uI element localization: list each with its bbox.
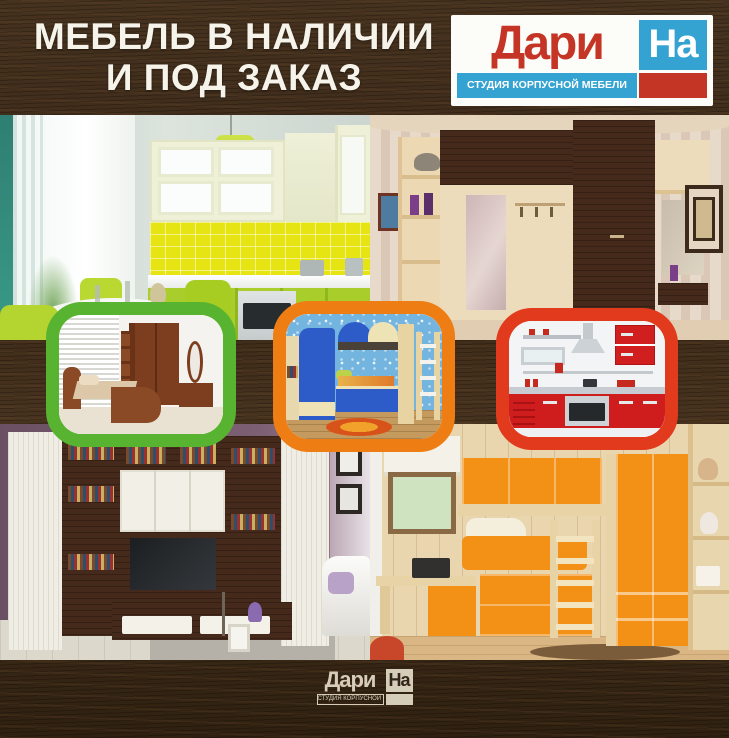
brand-red-block bbox=[639, 73, 707, 98]
ladder-rung bbox=[556, 580, 594, 586]
footer-brand-tagline: СТУДИЯ КОРПУСНОЙ МЕБЕЛИ bbox=[317, 694, 384, 705]
thumb-red-kitchen-scene bbox=[509, 321, 665, 437]
shaggy-rug bbox=[530, 644, 680, 660]
right-drawer bbox=[658, 283, 708, 305]
steel-handle bbox=[619, 401, 633, 404]
brand-logo-name-row: Дари На bbox=[457, 20, 707, 70]
pot bbox=[583, 379, 597, 387]
purple-pillow bbox=[328, 572, 354, 594]
glass-door bbox=[340, 135, 366, 215]
steel-handle bbox=[543, 401, 557, 404]
loft-platform bbox=[458, 504, 608, 516]
yellow-tile-backsplash bbox=[150, 222, 370, 278]
blanket bbox=[338, 376, 394, 386]
vase bbox=[424, 193, 433, 215]
glass-door bbox=[158, 147, 214, 177]
hook bbox=[535, 207, 538, 217]
nested-frames-art bbox=[685, 185, 723, 253]
flowers bbox=[248, 602, 262, 622]
red-decor bbox=[617, 380, 635, 387]
books-row bbox=[287, 366, 298, 378]
red-mitt bbox=[555, 363, 563, 373]
footer-brand-block bbox=[386, 694, 413, 705]
bean-bag bbox=[370, 636, 404, 660]
thumb-kids-bunk-room bbox=[273, 301, 455, 452]
bench-drawer bbox=[122, 616, 192, 634]
glass-door bbox=[158, 181, 214, 215]
ladder-rung bbox=[420, 376, 436, 380]
nested-frame-inner bbox=[693, 197, 715, 241]
drawer-seam bbox=[616, 618, 688, 621]
steel-handle bbox=[621, 353, 633, 356]
red-canister bbox=[533, 379, 538, 387]
shelf bbox=[693, 590, 729, 594]
desk-leg bbox=[380, 586, 390, 634]
brand-tagline: СТУДИЯ КОРПУСНОЙ МЕБЕЛИ bbox=[457, 73, 637, 98]
dresser-mirror bbox=[187, 341, 203, 383]
window bbox=[388, 472, 456, 534]
books-row bbox=[231, 448, 275, 464]
footer-brand-logo: Дари На СТУДИЯ КОРПУСНОЙ МЕБЕЛИ bbox=[317, 669, 413, 705]
vase bbox=[670, 265, 678, 281]
utensil-rail bbox=[523, 371, 653, 374]
top-cabinets-wenge bbox=[440, 130, 573, 185]
red-canister bbox=[525, 379, 530, 387]
teddy-bear bbox=[698, 458, 718, 480]
red-glass-decor bbox=[543, 329, 549, 335]
mirror-panel bbox=[466, 195, 506, 310]
ladder-rung bbox=[556, 624, 594, 630]
bw-picture bbox=[336, 484, 362, 514]
shelf bbox=[693, 482, 729, 486]
steel-shelf bbox=[523, 335, 581, 339]
upper-bunk-shelf bbox=[338, 342, 398, 350]
ladder-rung bbox=[420, 392, 436, 396]
door-seam bbox=[154, 470, 156, 532]
books-row bbox=[68, 486, 114, 502]
footer-logo-name-row: Дари На bbox=[317, 669, 413, 692]
decor-branch bbox=[222, 592, 225, 636]
desk-drawers bbox=[428, 586, 476, 636]
brand-name-part2: На bbox=[639, 20, 707, 70]
red-glass-decor bbox=[529, 329, 535, 335]
books-row bbox=[231, 514, 275, 530]
loft-upper-cabinets bbox=[462, 458, 602, 504]
glass-door bbox=[218, 147, 274, 177]
ladder-rung bbox=[420, 360, 436, 364]
steel-handle bbox=[621, 333, 633, 336]
drawer-seam bbox=[616, 592, 688, 595]
hook-rail bbox=[515, 203, 565, 206]
ladder-rung bbox=[420, 344, 436, 348]
hook bbox=[520, 207, 523, 217]
hat-decor bbox=[414, 153, 440, 171]
bunny-toy bbox=[700, 512, 718, 534]
pot bbox=[345, 258, 363, 276]
side-shelf bbox=[286, 336, 299, 420]
photo-living-room-wall-unit bbox=[0, 424, 370, 660]
thumb-kids-scene bbox=[286, 314, 442, 439]
headline-line2: И ПОД ЗАКАЗ bbox=[18, 57, 450, 98]
shelf bbox=[693, 536, 729, 540]
headline: МЕБЕЛЬ В НАЛИЧИИ И ПОД ЗАКАЗ bbox=[18, 16, 450, 98]
tv bbox=[130, 538, 216, 590]
headline-line1: МЕБЕЛЬ В НАЛИЧИИ bbox=[18, 16, 450, 57]
ladder-rung bbox=[556, 602, 594, 608]
brand-name-part1: Дари bbox=[457, 20, 637, 70]
ladder-rung bbox=[556, 536, 594, 542]
white-box bbox=[696, 566, 720, 586]
footer-logo-tagline-row: СТУДИЯ КОРПУСНОЙ МЕБЕЛИ bbox=[317, 694, 413, 705]
orange-rug bbox=[326, 418, 392, 436]
steel-handle bbox=[643, 401, 657, 404]
range-hood-chimney bbox=[285, 133, 335, 228]
thumb-bedroom-scene bbox=[59, 315, 223, 434]
lower-bunk-drawers bbox=[336, 386, 398, 412]
thumb-bedroom-set bbox=[46, 302, 236, 447]
corner-wardrobe-column bbox=[573, 120, 655, 338]
photo-frame-decor bbox=[228, 624, 250, 652]
hook bbox=[550, 207, 553, 217]
photo-orange-kids-room bbox=[370, 424, 729, 660]
furniture-ad-poster: МЕБЕЛЬ В НАЛИЧИИ И ПОД ЗАКАЗ Дари На СТУ… bbox=[0, 0, 729, 738]
footer-brand-name-part1: Дари bbox=[317, 669, 384, 692]
oven-window bbox=[569, 403, 605, 421]
bed-pillow bbox=[79, 375, 99, 385]
hood-chimney bbox=[583, 323, 593, 341]
bed-footboard bbox=[111, 387, 161, 423]
ladder-rung bbox=[556, 558, 594, 564]
laptop bbox=[412, 558, 450, 578]
wardrobe-trim bbox=[606, 454, 616, 646]
brand-logo: Дари На СТУДИЯ КОРПУСНОЙ МЕБЕЛИ bbox=[451, 15, 713, 106]
cabinet-seam bbox=[615, 344, 655, 346]
countertop bbox=[148, 275, 370, 288]
wardrobe-base bbox=[299, 402, 335, 416]
white-pilaster-left bbox=[8, 432, 62, 650]
footer-brand-name-part2: На bbox=[386, 669, 413, 692]
bunk-post bbox=[398, 324, 414, 424]
countertop bbox=[509, 387, 665, 394]
books-row bbox=[68, 554, 114, 570]
door-seam bbox=[189, 470, 191, 532]
vase bbox=[410, 195, 419, 215]
white-doors bbox=[120, 470, 225, 532]
kitchen-floor bbox=[509, 428, 665, 436]
drawer-stack bbox=[513, 397, 535, 425]
brand-logo-tagline-row: СТУДИЯ КОРПУСНОЙ МЕБЕЛИ bbox=[457, 73, 707, 98]
thumb-red-kitchen bbox=[496, 308, 678, 450]
pot bbox=[300, 260, 324, 276]
door-handle bbox=[610, 235, 624, 238]
white-sofa bbox=[322, 556, 370, 636]
glass-door bbox=[218, 181, 274, 215]
dresser bbox=[179, 383, 213, 407]
